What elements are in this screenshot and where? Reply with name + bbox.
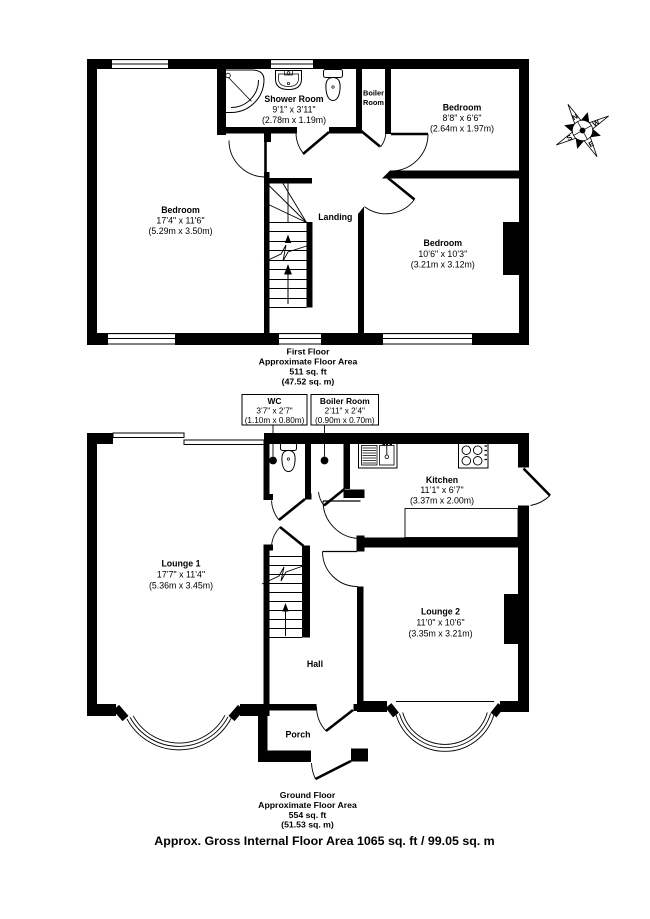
svg-text:511 sq. ft: 511 sq. ft [289,367,326,377]
svg-text:Kitchen: Kitchen [426,475,458,485]
svg-text:17’7" x 11’4": 17’7" x 11’4" [157,570,205,580]
svg-text:2’11" x 2’4": 2’11" x 2’4" [325,407,365,416]
svg-text:(3.35m x 3.21m): (3.35m x 3.21m) [408,629,472,639]
svg-text:Approximate Floor Area: Approximate Floor Area [258,800,357,810]
svg-text:8’8" x 6’6": 8’8" x 6’6" [442,113,481,123]
svg-text:Lounge 2: Lounge 2 [421,607,460,617]
svg-text:(51.53 sq. m): (51.53 sq. m) [281,820,334,830]
svg-text:(1.10m x 0.80m): (1.10m x 0.80m) [245,416,305,425]
svg-text:Boiler: Boiler [363,89,384,98]
svg-text:Bedroom: Bedroom [423,238,462,248]
svg-text:(2.64m x 1.97m): (2.64m x 1.97m) [430,124,494,134]
svg-text:Porch: Porch [286,730,311,740]
svg-text:Room: Room [363,98,384,107]
svg-text:(3.37m x 2.00m): (3.37m x 2.00m) [410,495,474,505]
svg-text:10’6" x 10’3": 10’6" x 10’3" [418,249,467,259]
svg-text:Ground Floor: Ground Floor [280,790,336,800]
svg-text:3’7" x 2’7": 3’7" x 2’7" [256,407,292,416]
svg-text:(0.90m x 0.70m): (0.90m x 0.70m) [315,416,375,425]
svg-text:(47.52 sq. m): (47.52 sq. m) [282,376,335,386]
svg-text:Approx. Gross Internal Floor A: Approx. Gross Internal Floor Area 1065 s… [154,834,494,848]
svg-text:9’1" x 3’11": 9’1" x 3’11" [272,104,315,114]
svg-text:17’4" x 11’6": 17’4" x 11’6" [156,215,204,225]
svg-text:(2.78m x 1.19m): (2.78m x 1.19m) [262,115,326,125]
svg-text:Lounge 1: Lounge 1 [161,559,200,569]
svg-text:Shower Room: Shower Room [264,94,323,104]
svg-text:Boiler Room: Boiler Room [320,396,370,406]
svg-text:Bedroom: Bedroom [161,205,200,215]
svg-text:First Floor: First Floor [287,347,331,357]
svg-text:Hall: Hall [307,659,323,669]
svg-text:Landing: Landing [318,212,352,222]
svg-text:(5.29m x 3.50m): (5.29m x 3.50m) [148,226,212,236]
svg-text:11’0" x 10’6": 11’0" x 10’6" [416,618,464,628]
svg-text:WC: WC [268,396,282,406]
svg-text:(5.36m x 3.45m): (5.36m x 3.45m) [149,581,213,591]
svg-text:(3.21m x 3.12m): (3.21m x 3.12m) [411,260,475,270]
svg-text:Approximate Floor Area: Approximate Floor Area [259,357,358,367]
svg-text:Bedroom: Bedroom [443,102,482,112]
svg-text:554 sq. ft: 554 sq. ft [289,810,327,820]
svg-text:11’1" x 6’7": 11’1" x 6’7" [420,485,463,495]
